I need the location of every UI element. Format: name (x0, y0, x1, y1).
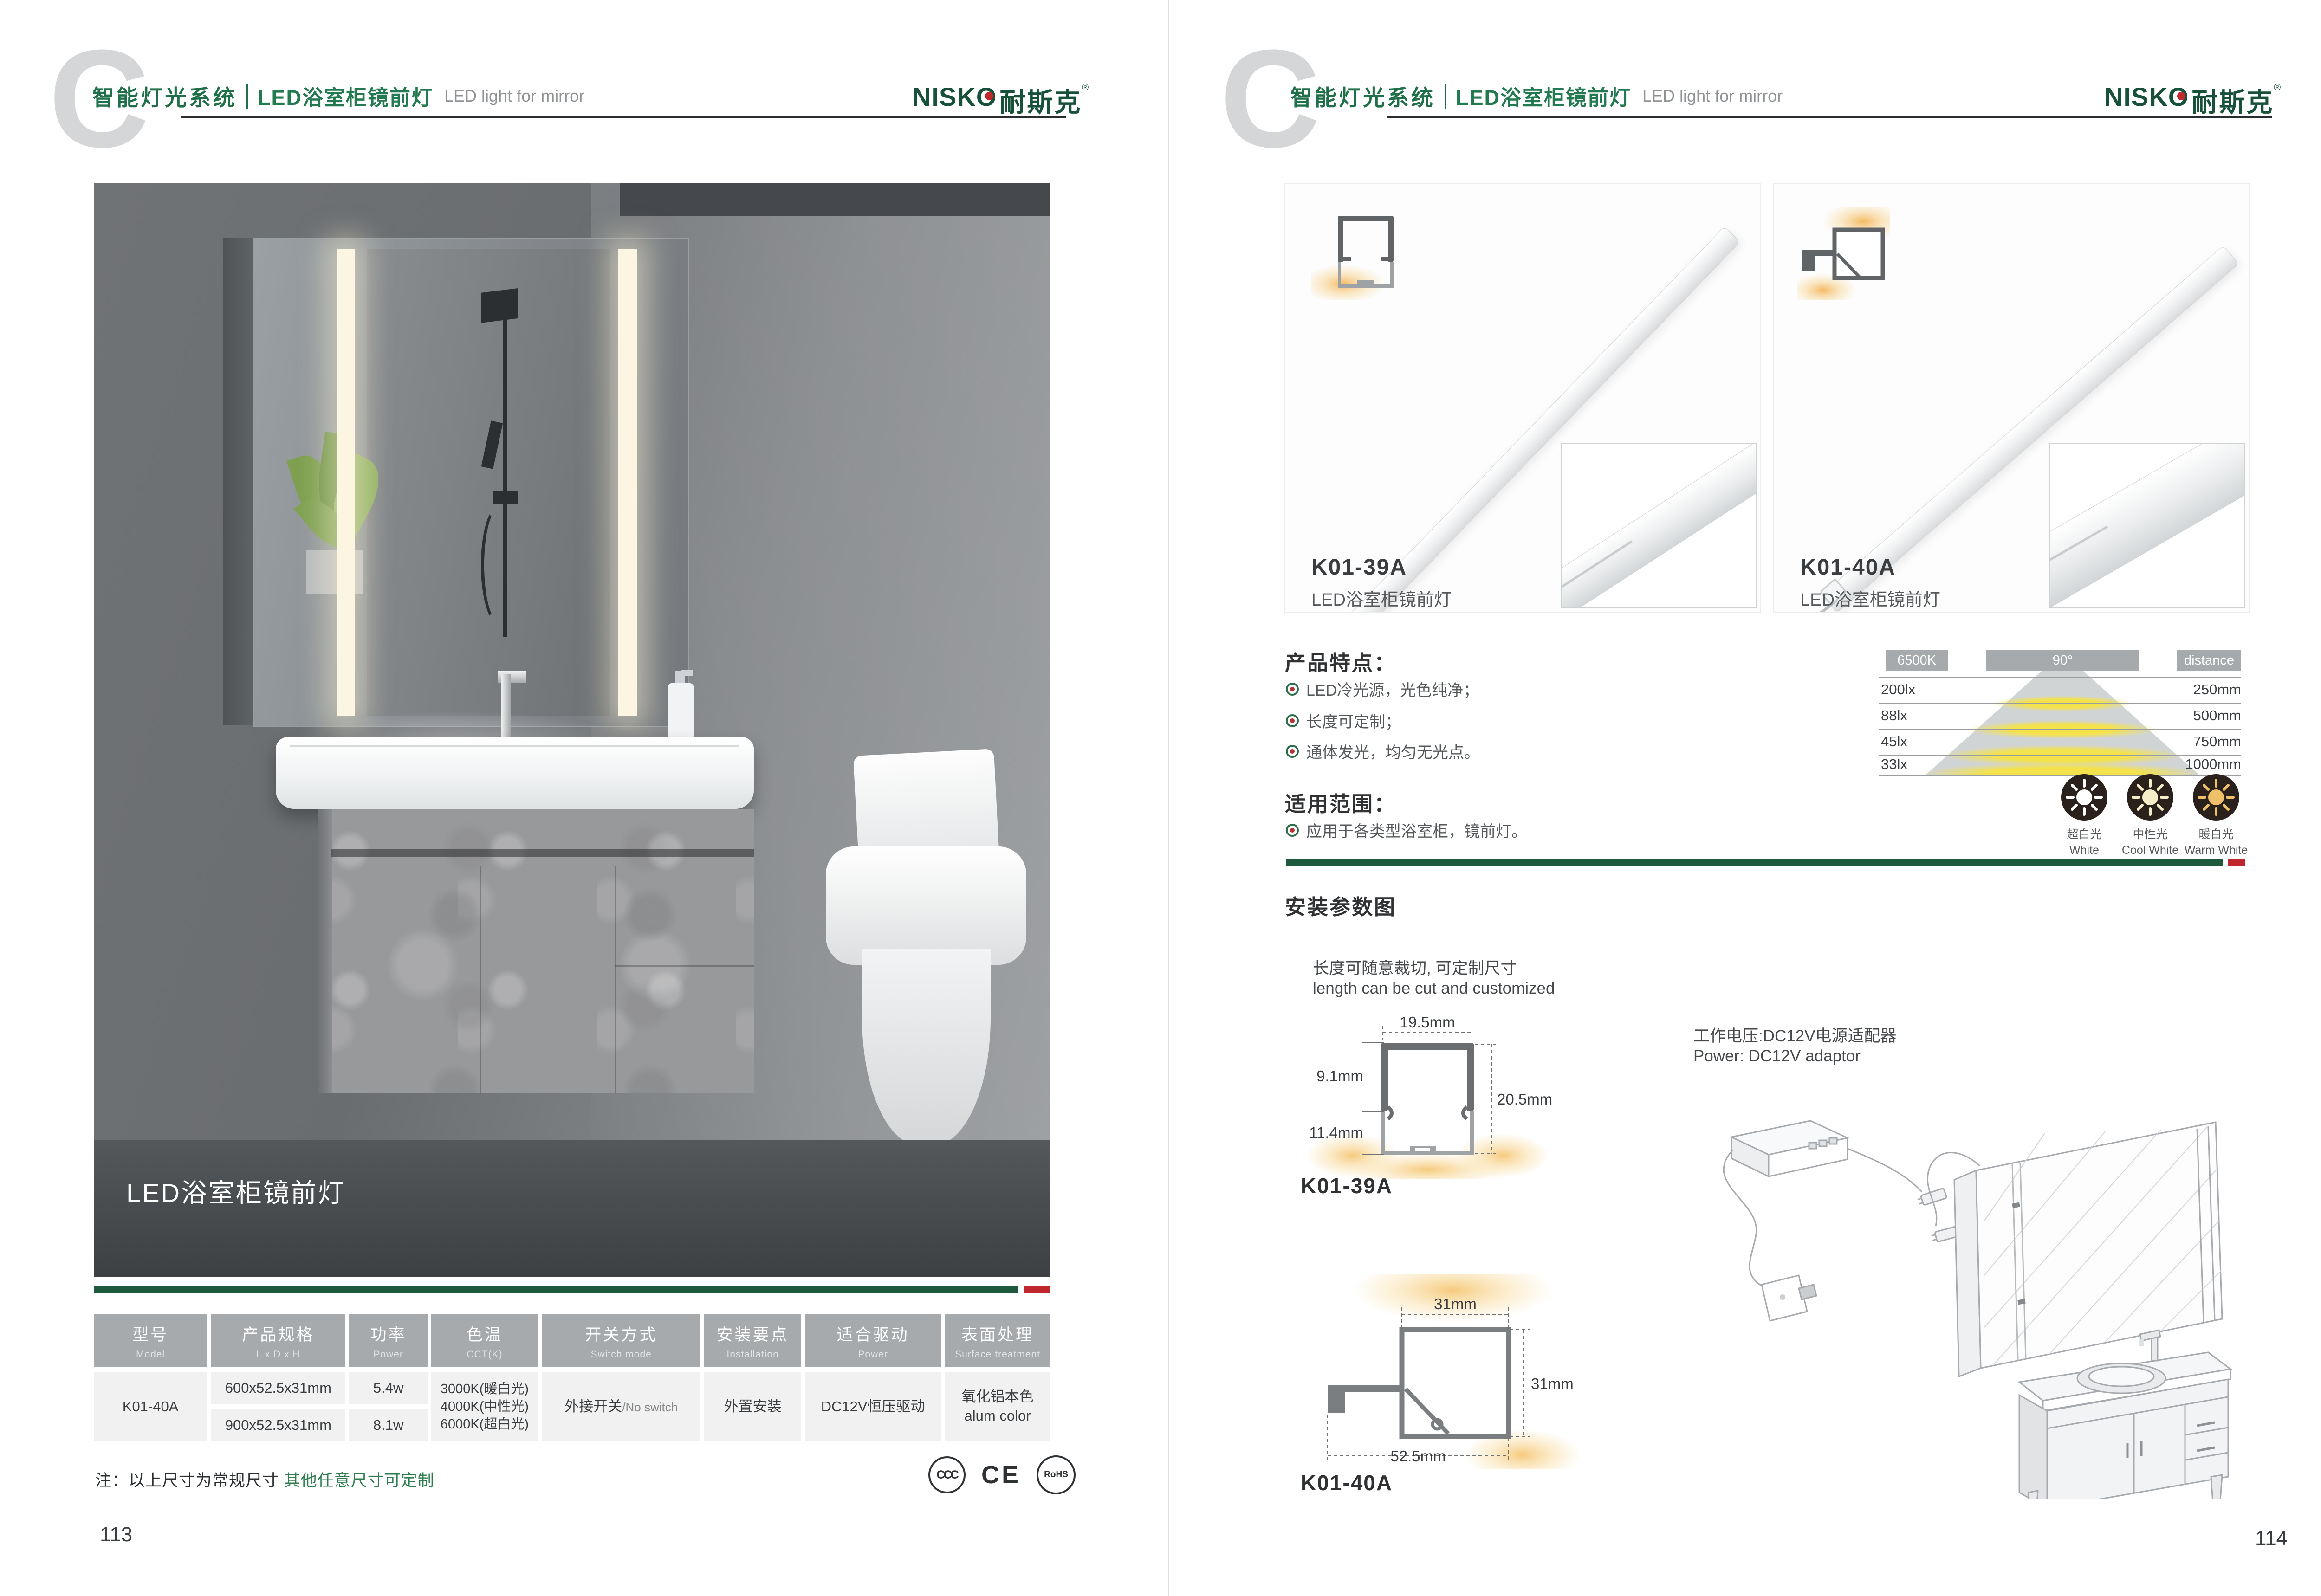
bullet-icon (1286, 745, 1299, 758)
brand-logo: NISKO 耐斯克 ® (912, 82, 1089, 119)
toilet-base (862, 949, 991, 1146)
cell-switch: 外接开关/No switch (542, 1372, 700, 1441)
toilet-seat (826, 846, 1027, 965)
led-strip-left (337, 249, 355, 716)
vanity-drawer-seam (615, 965, 754, 967)
table-header-model: 型号Model (94, 1314, 207, 1367)
bullet-icon (1286, 714, 1299, 727)
product-card-k01-39a: K01-39A LED浴室柜镜前灯 (1284, 183, 1761, 613)
table-header-cct: 色温CCT(K) (431, 1314, 538, 1367)
installation-illustration (1687, 1081, 2263, 1499)
cell-power-1: 5.4w (349, 1372, 427, 1404)
page-header: 智能灯光系统 LED浴室柜镜前灯 LED light for mirror (92, 80, 584, 112)
lux-value: 45lx (1881, 733, 1907, 750)
cell-power-2: 8.1w (349, 1409, 427, 1441)
page-gutter (1168, 0, 1169, 1596)
power-note-cn: 工作电压:DC12V电源适配器 (1693, 1023, 1897, 1047)
bullet-icon (1286, 683, 1299, 696)
soap-spout (681, 670, 693, 676)
cut-note-en: length can be cut and customized (1313, 979, 1555, 998)
lux-value: 33lx (1881, 756, 1907, 773)
wall-ledge (620, 183, 1050, 216)
card-model-label: K01-40A (1800, 555, 1896, 580)
distribution-cct-chip: 6500K (1886, 650, 1948, 671)
divider-red (2228, 859, 2245, 866)
led-strip-right (618, 249, 636, 716)
ce-icon: CE (981, 1460, 1021, 1489)
header-system-title: 智能灯光系统 (1290, 80, 1435, 112)
sun-icon-warm-white (2193, 774, 2239, 821)
table-header-switch: 开关方式Switch mode (542, 1314, 700, 1367)
detail-inset (2049, 443, 2245, 608)
cell-cct: 3000K(暖白光) 4000K(中性光) 6000K(超白光) (431, 1372, 538, 1441)
header-rule (1387, 116, 2272, 118)
logo-red-dot-icon (2177, 92, 2185, 100)
divider-green (94, 1286, 1018, 1293)
sun-icon-white (2061, 774, 2107, 821)
distribution-rule (1879, 703, 2241, 704)
card-name-label: LED浴室柜镜前灯 (1311, 585, 1452, 611)
distribution-rule (1879, 677, 2241, 678)
lux-value: 88lx (1881, 707, 1907, 724)
wash-basin (276, 737, 754, 809)
cell-surface: 氧化铝本色 alum color (945, 1372, 1050, 1441)
dim-width-top: 19.5mm (1400, 1016, 1455, 1031)
page-number-right: 114 (2255, 1527, 2288, 1550)
hand-shower (481, 421, 503, 469)
brand-logo-chinese: 耐斯克 (999, 82, 1082, 119)
features-title: 产品特点： (1285, 646, 1396, 676)
mirror-cabinet (223, 238, 687, 725)
table-header-installation: 安装要点Installation (704, 1314, 801, 1367)
toilet (826, 752, 1027, 1146)
shower-valve (493, 491, 517, 503)
vanity-door-seam (615, 866, 616, 1093)
header-product-title: LED浴室柜镜前灯 (1456, 81, 1631, 111)
header-separator (246, 84, 248, 109)
logo-red-dot-icon (985, 92, 993, 100)
header-rule (181, 116, 1066, 118)
install-section-title: 安装参数图 (1285, 890, 1396, 920)
table-header-power: 功率Power (349, 1314, 427, 1367)
distance-value: 500mm (2148, 707, 2241, 724)
table-header-size: 产品规格L x D x H (211, 1314, 345, 1367)
basin-lip (290, 745, 739, 747)
header-system-title: 智能灯光系统 (92, 80, 237, 112)
vanity-side (318, 809, 332, 1093)
diagram-model-label: K01-39A (1301, 1173, 1393, 1198)
feature-item: LED冷光源，光色纯净； (1286, 678, 1479, 700)
sun-icon-cool-white (2127, 774, 2173, 821)
brand-logo: NISKO 耐斯克 ® (2104, 82, 2281, 119)
dim-height-total: 20.5mm (1497, 1091, 1552, 1108)
brand-logo-latin: NISKO (2104, 82, 2189, 112)
dim-width-bottom: 52.5mm (1390, 1447, 1446, 1465)
cell-driver: DC12V恒压驱动 (805, 1372, 941, 1441)
distance-value: 250mm (2148, 681, 2241, 698)
cell-powers: 5.4w 8.1w (349, 1372, 427, 1441)
diagram-model-label: K01-40A (1301, 1470, 1393, 1495)
dimension-diagram-k01-39a: 19.5mm 9.1mm 11.4mm 20.5mm (1297, 1016, 1557, 1179)
spec-table: 型号Model 产品规格L x D x H 功率Power 色温CCT(K) 开… (94, 1314, 1050, 1441)
brand-logo-latin: NISKO (912, 82, 997, 112)
registered-mark: ® (1082, 83, 1089, 93)
cell-installation: 外置安装 (704, 1372, 801, 1441)
mirror-reflection (367, 249, 609, 716)
distance-value: 750mm (2148, 733, 2241, 750)
product-card-k01-40a: K01-40A LED浴室柜镜前灯 (1773, 183, 2250, 613)
dim-height-right: 31mm (1531, 1375, 1574, 1392)
divider-green (1286, 859, 2223, 866)
card-model-label: K01-39A (1311, 555, 1407, 580)
bullet-icon (1286, 824, 1299, 837)
feature-item: 通体发光，均匀无光点。 (1286, 740, 1480, 762)
header-product-title: LED浴室柜镜前灯 (258, 81, 433, 111)
photo-bathroom: LED浴室柜镜前灯 (94, 183, 1050, 1277)
vanity-door-seam (480, 866, 481, 1093)
cct-option-white: 超白光 White (2052, 774, 2117, 859)
cell-model: K01-40A (94, 1372, 207, 1441)
size-note: 注：以上尺寸为常规尺寸 其他任意尺寸可定制 (95, 1467, 434, 1491)
soap-bottle (668, 683, 694, 742)
page-header: 智能灯光系统 LED浴室柜镜前灯 LED light for mirror (1290, 80, 1783, 112)
vanity-top-slot (331, 849, 754, 857)
photo-caption: LED浴室柜镜前灯 (126, 1172, 345, 1210)
registered-mark: ® (2274, 83, 2281, 93)
header-separator (1445, 84, 1446, 109)
feature-item: 长度可定制； (1286, 709, 1401, 732)
cell-size-2: 900x52.5x31mm (211, 1409, 345, 1441)
dim-height-upper: 9.1mm (1316, 1067, 1363, 1085)
table-header-driver: 适合驱动Power (805, 1314, 941, 1367)
page-number-left: 113 (100, 1523, 132, 1546)
vanity-cabinet (318, 809, 754, 1093)
distance-value: 1000mm (2148, 756, 2241, 773)
detail-inset (1561, 443, 1757, 608)
application-item: 应用于各类型浴室柜，镜前灯。 (1286, 819, 1527, 841)
application-title: 适用范围： (1285, 787, 1396, 817)
shower-hose (481, 506, 517, 625)
divider-red (1024, 1286, 1050, 1293)
lux-value: 200lx (1881, 681, 1915, 698)
cell-sizes: 600x52.5x31mm 900x52.5x31mm (211, 1372, 345, 1441)
inset-led-bar (2049, 443, 2245, 608)
distribution-rule (1879, 729, 2241, 730)
cell-size-1: 600x52.5x31mm (211, 1372, 345, 1404)
power-note-en: Power: DC12V adaptor (1693, 1047, 1861, 1066)
certification-icons: CCC CE RoHS (928, 1455, 1076, 1494)
mirror-cabinet-front (253, 238, 689, 727)
cut-note-cn: 长度可随意裁切, 可定制尺寸 (1313, 955, 1517, 979)
faucet (501, 674, 511, 740)
rohs-icon: RoHS (1037, 1455, 1076, 1494)
distribution-distance-chip: distance (2177, 650, 2241, 671)
dim-height-lower: 11.4mm (1309, 1124, 1363, 1141)
shower-head (481, 289, 518, 323)
mirror-cabinet-side (223, 238, 253, 725)
dim-width-top: 31mm (1434, 1295, 1477, 1312)
header-product-subtitle: LED light for mirror (444, 86, 584, 106)
cct-options: 超白光 White 中性光 Cool White (2052, 774, 2249, 859)
distribution-angle-chip: 90° (1986, 650, 2139, 671)
header-product-subtitle: LED light for mirror (1642, 86, 1783, 106)
catalog-spread: C 智能灯光系统 LED浴室柜镜前灯 LED light for mirror … (0, 0, 2321, 1596)
ccc-icon: CCC (928, 1456, 966, 1493)
dimension-diagram-k01-40a: 31mm 31mm 52.5mm (1295, 1274, 1583, 1469)
inset-led-bar (1561, 443, 1757, 608)
brand-logo-chinese: 耐斯克 (2191, 82, 2274, 119)
card-name-label: LED浴室柜镜前灯 (1800, 585, 1940, 611)
cct-option-warm-white: 暖白光 Warm White (2184, 774, 2249, 859)
table-header-surface: 表面处理Surface treatment (945, 1314, 1050, 1367)
cct-option-cool-white: 中性光 Cool White (2118, 774, 2183, 859)
